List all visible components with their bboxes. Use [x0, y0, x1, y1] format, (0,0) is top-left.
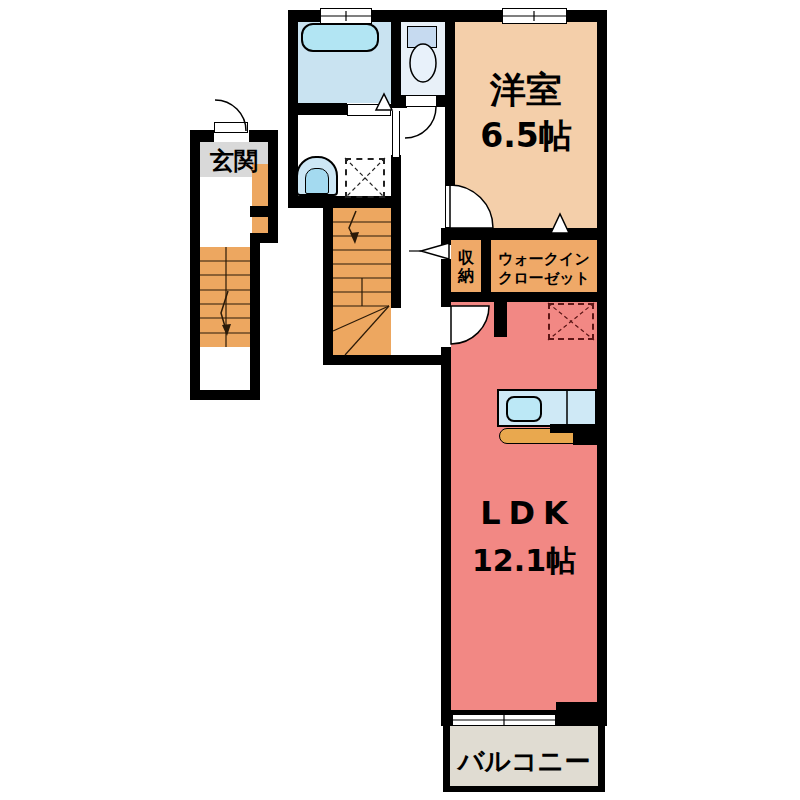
wall-balcony-block: [556, 702, 597, 726]
toilet-door-arc: [405, 107, 436, 138]
bathroom-door-slab: [347, 104, 391, 116]
kitchen-stove-block: [573, 424, 597, 445]
wall-balcony-left: [443, 726, 450, 792]
ldk-label: LDK: [451, 494, 597, 532]
kitchen-sink: [506, 396, 542, 422]
wall-right-main: [597, 10, 607, 726]
wall-kitchen-stub: [494, 292, 507, 337]
entrance-stairs: [200, 247, 250, 347]
wall-western-bottom: [441, 228, 607, 240]
middle-stairs: [333, 208, 391, 355]
wall-ldk-left: [441, 347, 451, 726]
wall-balcony-bottom: [443, 786, 605, 792]
wall-ldk-left-stub: [441, 302, 451, 307]
storage-label: 収納: [457, 249, 475, 286]
wall-balcony-right: [598, 726, 605, 792]
western-door-slab: [445, 185, 454, 228]
wall-hall-divider: [391, 155, 401, 308]
wall-western-left: [445, 10, 455, 185]
washroom-doorway: [392, 111, 400, 157]
wall-storage-left-stub: [441, 240, 451, 245]
balcony-label: バルコニー: [450, 744, 598, 779]
wall-genkan-bottom: [190, 390, 260, 400]
toilet-door-slab: [405, 95, 437, 107]
wall-toilet-bottom-right: [437, 95, 445, 107]
wall-midstairs-left: [323, 196, 333, 365]
toilet-tank: [407, 26, 437, 48]
wic-label-line2: クローゼット: [491, 269, 597, 288]
washbasin-bowl: [305, 168, 329, 194]
genkan-label: 玄関: [198, 145, 270, 177]
ldk-size: 12.1帖: [451, 541, 597, 582]
wall-stairwell-right: [250, 243, 260, 400]
refrigerator-space: [548, 303, 594, 340]
storage-door-marker: [421, 243, 449, 259]
wall-midsection-bottom: [323, 355, 451, 365]
window-western-room: [502, 8, 567, 24]
floor-plan: 玄関 洋室 6.5帖 収納 ウォークイン クローゼット LDK 12.1帖 バル…: [0, 0, 800, 800]
genkan-step-lower: [252, 217, 268, 233]
plan-symbols-overlay: [0, 0, 800, 800]
western-room-size: 6.5帖: [455, 114, 597, 159]
window-bathroom: [320, 8, 372, 24]
washing-machine-pan: [345, 158, 385, 198]
wall-bath-toilet-divider: [391, 18, 401, 107]
window-ldk-balcony: [452, 714, 556, 726]
wall-bathroom-bottom: [288, 103, 347, 115]
wall-genkan-cap: [250, 233, 278, 243]
wic-label-line1: ウォークイン: [491, 250, 597, 269]
wall-step-divider: [250, 206, 270, 217]
bathtub: [301, 23, 379, 52]
wall-ldk-top: [441, 292, 607, 302]
entrance-door-slab: [214, 122, 248, 133]
western-room-label: 洋室: [455, 66, 597, 115]
